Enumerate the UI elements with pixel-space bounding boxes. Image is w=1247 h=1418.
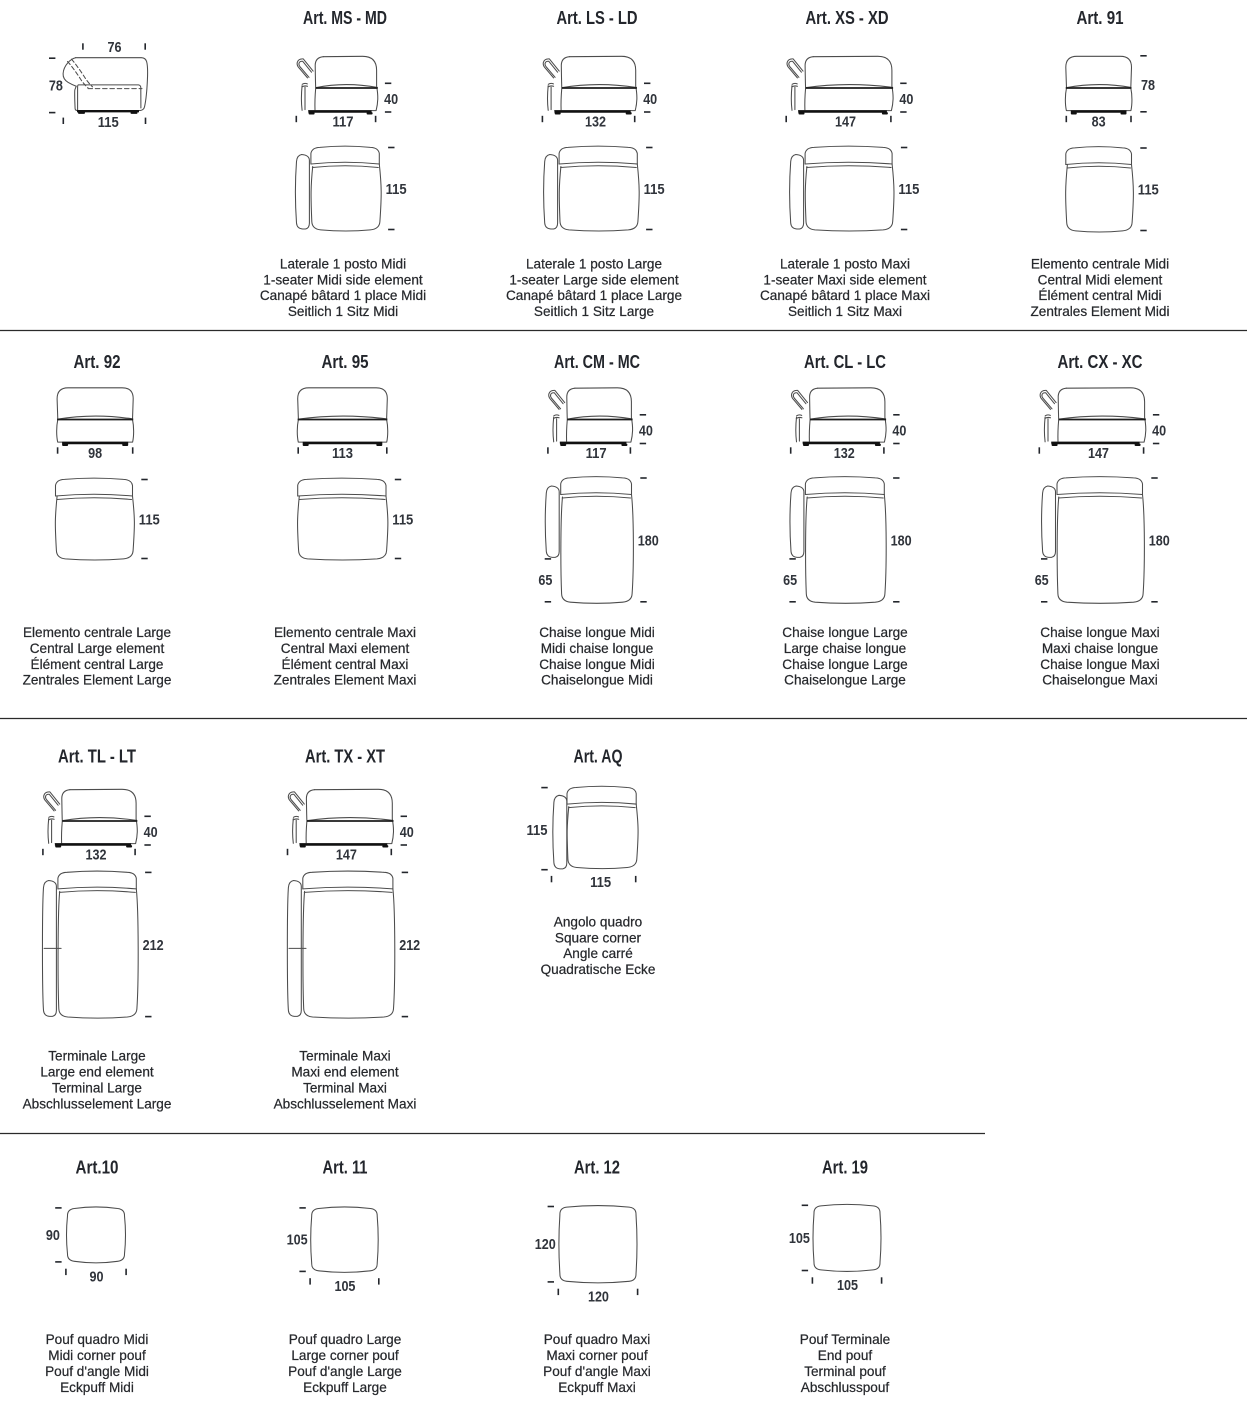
svg-text:Central Large element: Central Large element [30, 641, 165, 656]
svg-text:180: 180 [1149, 532, 1170, 549]
svg-text:1-seater Midi side element: 1-seater Midi side element [263, 272, 423, 287]
svg-text:Canapé bâtard 1 place Maxi: Canapé bâtard 1 place Maxi [760, 288, 930, 303]
svg-text:147: 147 [835, 113, 856, 130]
svg-text:End pouf: End pouf [818, 1348, 873, 1363]
svg-text:115: 115 [527, 822, 548, 839]
svg-text:Abschlusselement Maxi: Abschlusselement Maxi [274, 1096, 417, 1111]
svg-text:Art. XS - XD: Art. XS - XD [806, 8, 889, 28]
svg-text:Large chaise longue: Large chaise longue [784, 641, 906, 656]
svg-text:Abschlusspouf: Abschlusspouf [801, 1380, 890, 1395]
svg-text:212: 212 [399, 937, 420, 954]
svg-text:180: 180 [638, 532, 659, 549]
svg-text:Chaiselongue Maxi: Chaiselongue Maxi [1042, 673, 1158, 688]
svg-text:132: 132 [834, 445, 855, 462]
svg-text:Central Maxi element: Central Maxi element [281, 641, 410, 656]
svg-text:Eckpuff Midi: Eckpuff Midi [60, 1380, 134, 1395]
svg-text:Maxi corner pouf: Maxi corner pouf [546, 1348, 647, 1363]
svg-text:Quadratische Ecke: Quadratische Ecke [541, 962, 656, 977]
svg-text:Canapé bâtard 1 place Midi: Canapé bâtard 1 place Midi [260, 288, 426, 303]
svg-text:40: 40 [639, 422, 653, 439]
svg-text:Zentrales Element Large: Zentrales Element Large [23, 673, 172, 688]
svg-text:Seitlich 1 Sitz Large: Seitlich 1 Sitz Large [534, 304, 654, 319]
svg-text:113: 113 [332, 445, 353, 462]
svg-text:117: 117 [332, 113, 353, 130]
svg-text:Art. 19: Art. 19 [822, 1158, 868, 1178]
svg-text:Chaise longue Midi: Chaise longue Midi [539, 625, 655, 640]
svg-text:147: 147 [1088, 445, 1109, 462]
svg-text:Angle carré: Angle carré [563, 946, 633, 961]
svg-text:Laterale 1 posto Maxi: Laterale 1 posto Maxi [780, 256, 910, 271]
svg-text:180: 180 [891, 532, 912, 549]
svg-text:Seitlich 1 Sitz Midi: Seitlich 1 Sitz Midi [288, 304, 398, 319]
svg-text:Élément central Maxi: Élément central Maxi [282, 657, 409, 672]
svg-text:65: 65 [1035, 572, 1049, 589]
svg-text:76: 76 [108, 39, 122, 56]
svg-text:Eckpuff Maxi: Eckpuff Maxi [558, 1380, 636, 1395]
svg-text:115: 115 [590, 874, 611, 891]
svg-text:40: 40 [892, 422, 906, 439]
svg-text:115: 115 [1138, 182, 1159, 199]
svg-text:40: 40 [144, 824, 158, 841]
svg-text:Pouf d'angle Maxi: Pouf d'angle Maxi [543, 1364, 651, 1379]
svg-text:Seitlich 1 Sitz Maxi: Seitlich 1 Sitz Maxi [788, 304, 902, 319]
svg-text:105: 105 [334, 1278, 355, 1295]
svg-text:Chaise longue Large: Chaise longue Large [782, 625, 907, 640]
svg-text:Art. CM - MC: Art. CM - MC [554, 352, 640, 372]
svg-text:105: 105 [837, 1277, 858, 1294]
svg-text:Chaise longue Midi: Chaise longue Midi [539, 657, 655, 672]
svg-text:Art. 11: Art. 11 [323, 1158, 368, 1178]
svg-text:Pouf Terminale: Pouf Terminale [800, 1332, 890, 1347]
svg-text:40: 40 [899, 91, 913, 108]
svg-text:117: 117 [586, 445, 607, 462]
svg-text:Elemento centrale Midi: Elemento centrale Midi [1031, 256, 1169, 271]
svg-text:Chaise longue Maxi: Chaise longue Maxi [1040, 625, 1159, 640]
svg-text:Chaise longue Maxi: Chaise longue Maxi [1040, 657, 1159, 672]
svg-text:Pouf quadro Midi: Pouf quadro Midi [46, 1332, 149, 1347]
svg-text:Maxi end element: Maxi end element [291, 1065, 399, 1080]
svg-text:Pouf d'angle Large: Pouf d'angle Large [288, 1364, 402, 1379]
svg-text:83: 83 [1092, 113, 1106, 130]
svg-text:Terminal Maxi: Terminal Maxi [303, 1080, 387, 1095]
svg-text:Pouf d'angle Midi: Pouf d'angle Midi [45, 1364, 149, 1379]
svg-text:105: 105 [789, 1230, 810, 1247]
svg-text:Art. 95: Art. 95 [322, 352, 369, 372]
svg-text:Canapé bâtard 1 place Large: Canapé bâtard 1 place Large [506, 288, 682, 303]
svg-text:Chaiselongue Large: Chaiselongue Large [784, 673, 906, 688]
svg-text:Central Midi element: Central Midi element [1038, 272, 1163, 287]
svg-text:Large corner pouf: Large corner pouf [291, 1348, 399, 1363]
svg-text:Maxi chaise longue: Maxi chaise longue [1042, 641, 1158, 656]
svg-text:40: 40 [400, 824, 414, 841]
svg-text:Zentrales Element Maxi: Zentrales Element Maxi [274, 673, 417, 688]
svg-text:115: 115 [644, 181, 665, 198]
svg-text:105: 105 [287, 1232, 308, 1249]
svg-text:Angolo quadro: Angolo quadro [554, 914, 642, 929]
svg-text:Chaiselongue Midi: Chaiselongue Midi [541, 673, 653, 688]
svg-text:Art. LS - LD: Art. LS - LD [557, 8, 638, 28]
svg-text:Midi chaise longue: Midi chaise longue [541, 641, 654, 656]
svg-text:Art. 92: Art. 92 [74, 352, 121, 372]
svg-text:Art. MS - MD: Art. MS - MD [303, 8, 387, 28]
svg-text:115: 115 [392, 511, 413, 528]
svg-text:Chaise longue Large: Chaise longue Large [782, 657, 907, 672]
svg-text:40: 40 [384, 91, 398, 108]
svg-text:115: 115 [386, 181, 407, 198]
svg-text:Terminal Large: Terminal Large [52, 1080, 142, 1095]
svg-text:Art. 91: Art. 91 [1077, 8, 1124, 28]
svg-text:78: 78 [1141, 77, 1155, 94]
svg-text:98: 98 [88, 445, 102, 462]
svg-text:Terminale Maxi: Terminale Maxi [299, 1049, 390, 1064]
svg-text:Terminal pouf: Terminal pouf [804, 1364, 886, 1379]
svg-text:Art.10: Art.10 [76, 1158, 119, 1178]
svg-text:Terminale Large: Terminale Large [48, 1049, 145, 1064]
svg-text:115: 115 [98, 114, 119, 131]
svg-text:Eckpuff Large: Eckpuff Large [303, 1380, 387, 1395]
svg-text:Élément central Large: Élément central Large [31, 657, 164, 672]
svg-text:Art. 12: Art. 12 [574, 1158, 620, 1178]
svg-text:90: 90 [90, 1268, 104, 1285]
svg-text:65: 65 [538, 572, 552, 589]
svg-text:Square corner: Square corner [555, 930, 642, 945]
svg-text:Art. AQ: Art. AQ [574, 747, 623, 767]
svg-text:115: 115 [139, 511, 160, 528]
svg-text:Art. CX - XC: Art. CX - XC [1058, 352, 1143, 372]
svg-text:Pouf quadro Maxi: Pouf quadro Maxi [544, 1332, 651, 1347]
svg-text:120: 120 [535, 1236, 556, 1253]
svg-text:Large end element: Large end element [40, 1065, 154, 1080]
svg-text:115: 115 [898, 181, 919, 198]
svg-text:Art. TL - LT: Art. TL - LT [58, 747, 136, 767]
svg-text:Elemento centrale Maxi: Elemento centrale Maxi [274, 625, 416, 640]
svg-text:Elemento centrale Large: Elemento centrale Large [23, 625, 171, 640]
svg-text:40: 40 [1152, 422, 1166, 439]
svg-text:Élément central Midi: Élément central Midi [1038, 288, 1161, 303]
svg-text:78: 78 [49, 78, 63, 95]
svg-text:120: 120 [588, 1288, 609, 1305]
svg-text:65: 65 [783, 572, 797, 589]
svg-text:Zentrales Element Midi: Zentrales Element Midi [1030, 304, 1169, 319]
svg-text:1-seater Maxi side element: 1-seater Maxi side element [763, 272, 926, 287]
svg-text:40: 40 [643, 91, 657, 108]
svg-text:Art. CL - LC: Art. CL - LC [804, 352, 886, 372]
svg-text:Pouf quadro Large: Pouf quadro Large [289, 1332, 402, 1347]
svg-text:90: 90 [46, 1227, 60, 1244]
svg-text:212: 212 [143, 937, 164, 954]
svg-text:147: 147 [336, 846, 357, 863]
svg-text:132: 132 [585, 113, 606, 130]
svg-text:Art. TX - XT: Art. TX - XT [305, 747, 385, 767]
svg-text:Abschlusselement Large: Abschlusselement Large [23, 1096, 172, 1111]
svg-text:132: 132 [86, 846, 107, 863]
svg-text:Midi corner pouf: Midi corner pouf [48, 1348, 146, 1363]
svg-text:1-seater Large side element: 1-seater Large side element [509, 272, 678, 287]
svg-text:Laterale 1 posto Midi: Laterale 1 posto Midi [280, 256, 406, 271]
svg-text:Laterale 1 posto Large: Laterale 1 posto Large [526, 256, 662, 271]
